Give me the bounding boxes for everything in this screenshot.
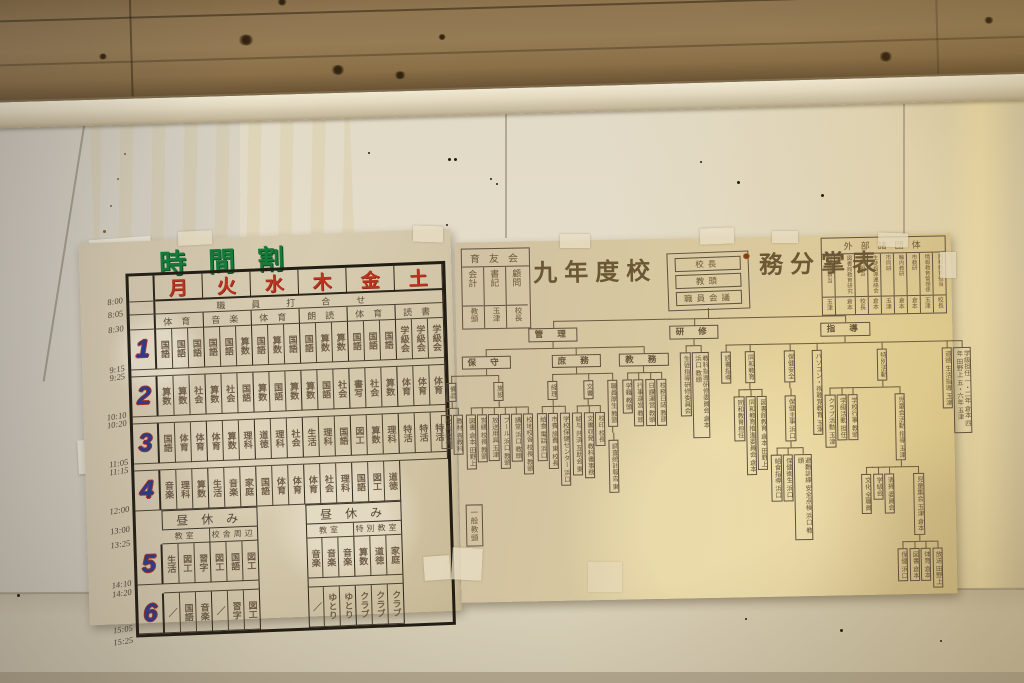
org-node-label: 図書 倉本 — [909, 547, 920, 581]
external-group-role: 図書館教育研究会 — [835, 254, 855, 297]
org-node: 調査統計報告 東 — [607, 432, 620, 492]
org-node: 学校行事 教頭 — [847, 387, 859, 441]
org-node-label: 調査統計報告 東 — [608, 439, 619, 492]
time-label: 10:20 — [106, 418, 127, 431]
org-children: 備品校具 校長教材 各教科施設図書 倉本 田野上営繕 校長 教頭放送用具 玉津プ… — [439, 374, 535, 476]
org-node-label: 講堂 浜口 教頭 — [511, 414, 522, 462]
timetable-cell: 生活 — [303, 417, 320, 458]
wall-speck — [17, 594, 20, 597]
org-node-label: 経理 — [547, 381, 558, 400]
org-node-label: 営繕 校長 教頭 — [477, 414, 488, 462]
timetable-cell: 国語 — [252, 325, 269, 366]
org-node: 同和教育同和教育担任同和教育推進委員会 倉本図書館教育 倉本 田野上 — [732, 343, 770, 475]
timetable-cell: 体育 — [207, 421, 224, 462]
timetable-cell: 国語 — [364, 321, 381, 362]
org-node-label: 教材 各教科 — [453, 415, 464, 455]
org-node-label: プール 浜口 教頭 — [500, 414, 511, 469]
timetable-cell: 図工 — [178, 543, 195, 584]
timetable-cell — [436, 582, 453, 623]
org-node-label: 生徒指導研修委員会 — [680, 352, 692, 417]
org-node-label: 同和教育担任 — [734, 396, 745, 441]
external-group-role: 市同研 — [881, 253, 894, 296]
timetable-cell: 国語 — [269, 371, 286, 412]
rust-speck — [117, 178, 119, 180]
org-node-label: 学級担任 一・二年 倉本 四年 田野上 五・六年 玉津 — [953, 346, 972, 432]
org-node: 管 理保 守備品校具 校長教材 各教科施設図書 倉本 田野上営繕 校長 教頭放送… — [437, 319, 672, 496]
timetable-cell: 理科 — [336, 463, 353, 504]
external-group-name: 倉本 — [895, 296, 907, 313]
org-node-label: 体育 倉本 — [921, 547, 932, 581]
org-node-label: 同和教育 — [744, 351, 755, 383]
org-node-label: 教 務 — [619, 352, 668, 366]
org-node-label: 道徳 生活指導 玉津 — [941, 347, 952, 408]
tape — [700, 227, 735, 244]
external-group-role: ALT担当 — [855, 254, 868, 297]
org-node: 読書指導 — [720, 344, 732, 383]
timetable-cell: 算数 — [316, 322, 333, 363]
timetable-cell — [135, 510, 162, 531]
time-label: 8:00 — [107, 295, 124, 307]
org-children: 保 守備品校具 校長教材 各教科施設図書 倉本 田野上営繕 校長 教頭放送用具 … — [438, 345, 671, 496]
org-children: 給食指導 浜口保健衛生 浜口避難訓練 安全点検 浜口 教頭 — [770, 447, 813, 541]
pta-role: 会計 — [462, 267, 484, 306]
timetable-cell: 算数 — [381, 367, 398, 408]
timetable-cell: 図工 — [351, 415, 368, 456]
external-group-name: 玉津 — [921, 296, 933, 313]
photo-of-wall-with-documents: 時間割 8:008:058:309:159:2510:1010:2011:051… — [0, 0, 1024, 683]
org-node-label: 保健安全 — [784, 350, 795, 382]
wall-speck — [840, 629, 843, 632]
orgchart-title-left: 九年度校 — [533, 251, 658, 288]
org-node: 教科指導研修委員会 倉本 浜口 教頭 — [691, 344, 712, 437]
org-node-label: 放送用具 玉津 — [488, 414, 499, 461]
timetable-cell — [276, 588, 293, 629]
org-node: 文化 全職員 — [861, 467, 873, 514]
timetable-cell: 音楽 — [338, 537, 355, 578]
timetable-cell — [400, 460, 417, 501]
external-group-name: 校長 — [856, 297, 868, 314]
org-children: 読書指導同和教育同和教育担任同和教育推進委員会 倉本図書館教育 倉本 田野上保健… — [720, 339, 975, 591]
timetable-cell: 社会 — [287, 418, 304, 459]
external-group-role: 生徒指導連絡会 — [868, 254, 881, 297]
timetable-cell: 理科 — [239, 420, 256, 461]
timetable-cell: 算数 — [301, 370, 318, 411]
rust-speck — [103, 230, 106, 233]
pta-columns: 会計教頭書記玉津顧問校長 — [462, 266, 530, 328]
timetable-cell: 理科 — [383, 414, 400, 455]
timetable-cell: 国語 — [159, 423, 176, 464]
org-node-label: 市費 旅費 東 校長 — [548, 413, 559, 470]
org-node: 文書給与 共済 互助会 東文書収発 教科書事務校印 校長 — [570, 373, 608, 479]
time-label: 12:00 — [109, 504, 130, 517]
timetable-cell: 国語 — [348, 321, 365, 362]
wood-knot — [331, 65, 345, 75]
org-node: 研 修生徒指導研修委員会教科指導研修委員会 倉本 浜口 教頭 — [669, 318, 722, 438]
timetable-cell: 家庭 — [386, 535, 403, 576]
org-node: 清掃 委員会 — [884, 467, 896, 514]
org-node-label: 避難訓練 安全点検 浜口 教頭 — [794, 454, 813, 540]
timetable-cell: 音楽 — [306, 538, 323, 579]
timetable-cell: 算数 — [173, 375, 190, 416]
pta-column: 顧問校長 — [506, 266, 528, 327]
timetable-cell: 4 — [134, 470, 161, 511]
timetable-cell: 体育 — [272, 465, 289, 506]
org-node: 校具 校長 — [441, 408, 453, 449]
org-node-label: 研 修 — [670, 325, 719, 339]
org-node: 体育 倉本 — [920, 540, 932, 581]
org-node-label: 図書 倉本 田野上 — [465, 414, 476, 469]
timetable-cell: 社会 — [320, 463, 337, 504]
timetable-cell: 木 — [298, 268, 347, 296]
timetable-cell: 社会 — [189, 375, 206, 416]
timetable-cell — [258, 540, 275, 581]
timetable-cell: 特活 — [415, 413, 432, 454]
org-node: 学籍 教頭 — [621, 372, 633, 413]
timetable-cell — [402, 534, 419, 575]
org-node: 校印 校長 — [594, 405, 606, 446]
timetable: 8:008:058:309:159:2510:1010:2011:0511:15… — [85, 261, 456, 639]
org-node-label: 読書指導 — [721, 351, 732, 383]
wood-knot — [984, 17, 994, 24]
timetable-cell: 家庭 — [240, 467, 257, 508]
org-root-item: 職員会議 — [676, 290, 742, 306]
external-group-role: 輪内教研 — [894, 253, 907, 296]
external-group-role: 児童会担当 — [822, 255, 835, 298]
org-children: 調査統計報告 東 — [607, 432, 620, 492]
external-group-column: 生徒指導連絡会倉本 — [868, 254, 882, 314]
timetable-cell: 6 — [138, 593, 165, 634]
timetable-cell: 算数 — [236, 326, 253, 367]
wall-speck — [454, 158, 457, 161]
timetable-cell: 音楽 — [224, 467, 241, 508]
timetable-cell: 算数 — [285, 371, 302, 412]
timetable-cell: ／ — [212, 591, 229, 632]
org-node: 経理給食 電話 浜口市費 旅費 東 校長学校保健センター 浜口 — [535, 374, 573, 486]
time-label: 15:05 — [113, 623, 134, 636]
org-node: 学校保健センター 浜口 — [559, 406, 572, 486]
org-node-label: 校印 校長 — [595, 412, 606, 446]
timetable-cell: 国語 — [188, 328, 205, 369]
external-group-column: 輪内教研倉本 — [894, 253, 908, 313]
timetable-cell — [130, 314, 156, 330]
wood-knot — [277, 0, 287, 6]
timetable-cell: 算数 — [354, 536, 371, 577]
time-label: 8:05 — [107, 308, 124, 320]
wood-board-joint — [934, 0, 939, 82]
timetable-cell: 理科 — [319, 416, 336, 457]
wall-seam-vertical — [505, 108, 507, 238]
org-node-label: 行事運営 教頭 — [633, 379, 644, 426]
timetable-cell: 算数 — [205, 374, 222, 415]
org-node: 日課運営 教頭 — [644, 372, 656, 426]
org-children: 生徒指導研修委員会教科指導研修委員会 倉本 浜口 教頭 — [679, 344, 711, 438]
external-group-name: 玉津 — [882, 296, 894, 313]
org-node-label: 管 理 — [529, 327, 578, 341]
timetable-cell: 音楽 — [160, 470, 177, 511]
pta-header: 育友会 — [462, 248, 529, 267]
org-node: 児童会活動 指導 玉津文化 全職員学級会清掃 委員会児童集会 玉津 倉本保健 浜… — [858, 385, 944, 589]
timetable-cell: 音楽 — [322, 537, 339, 578]
time-label: 13:00 — [110, 524, 131, 537]
org-node-label: 給食指導 浜口 — [771, 455, 782, 502]
timetable-cell: 国語 — [220, 326, 237, 367]
org-root-item: 校長 — [675, 256, 741, 272]
org-node-label: 日課運営 教頭 — [645, 379, 656, 426]
timetable-cell — [257, 505, 306, 527]
external-group-column: 図書館教育研究会倉本 — [835, 254, 856, 314]
org-node: 図書館教育 倉本 田野上 — [756, 388, 769, 469]
org-children: 保健主事 浜口給食指導 浜口保健衛生 浜口避難訓練 安全点検 浜口 教頭 — [769, 387, 815, 540]
timetable-cell: 国語 — [226, 541, 243, 582]
org-node-label: 同和教育推進委員会 倉本 — [745, 396, 757, 475]
org-node-label: 指 導 — [821, 322, 870, 336]
timetable-cell: クラブ — [356, 585, 373, 626]
org-root-item: 教頭 — [675, 273, 741, 289]
org-node: 児童集会 玉津 倉本保健 浜口図書 倉本体育 倉本放送 田野上 — [895, 466, 944, 588]
wall-speck — [745, 618, 747, 620]
orgchart-paper: 育友会 会計教頭書記玉津顧問校長 九年度校 校長教頭職員会議 務分掌表 外部諸団… — [455, 233, 958, 602]
timetable-cell: 図工 — [368, 461, 385, 502]
tape — [178, 230, 213, 246]
timetable-cell: 体育 — [304, 464, 321, 505]
timetable-cell: 理科 — [271, 418, 288, 459]
wood-knot — [438, 34, 446, 40]
external-group-role: 市教研 — [907, 253, 920, 296]
timetable-cell: 社会 — [333, 369, 350, 410]
wall-speck — [940, 640, 942, 642]
tape — [451, 547, 483, 581]
timetable-cell — [401, 499, 450, 521]
timetable-cell: 道徳 — [370, 535, 387, 576]
timetable-paper: 時間割 8:008:058:309:159:2510:1010:2011:051… — [78, 229, 461, 626]
org-node-label: 清掃 委員会 — [884, 474, 895, 514]
wall-speck — [496, 183, 498, 185]
org-node: 学級会 — [872, 467, 884, 500]
timetable-cell — [274, 539, 291, 580]
timetable-cell: 国語 — [204, 327, 221, 368]
org-node-label: 文書収発 教科書事務 — [584, 412, 596, 478]
org-node: 給食指導 浜口 — [770, 448, 782, 502]
org-node-label: 学校行事 教頭 — [848, 394, 859, 441]
external-group-column: 児童会担当玉津 — [822, 254, 836, 314]
org-node: 教 務学籍 教頭行事運営 教頭日課運営 教頭校務日誌 教頭 — [618, 345, 670, 426]
wood-knot — [238, 34, 254, 45]
org-node-label: 特別活動 — [877, 348, 888, 380]
timetable-cell: 5 — [136, 544, 163, 585]
org-top-branches: 管 理保 守備品校具 校長教材 各教科施設図書 倉本 田野上営繕 校長 教頭放送… — [460, 313, 953, 596]
org-node-label: 保 守 — [461, 355, 510, 369]
org-node-label: 施設 — [493, 382, 504, 401]
timetable-cell — [136, 530, 162, 545]
timetable-cell: 2 — [131, 376, 158, 417]
orgchart-root-box: 校長教頭職員会議 — [666, 250, 750, 311]
timetable-cell: クラブ — [372, 584, 389, 625]
timetable-cell — [292, 588, 309, 629]
orgchart-tree: 管 理保 守備品校具 校長教材 各教科施設図書 倉本 田野上営繕 校長 教頭放送… — [460, 313, 953, 596]
timetable-cell: 体育 — [288, 465, 305, 506]
org-node: 特別活動クラブ活動 玉津学級活動 担任学校行事 教頭児童会活動 指導 玉津文化 … — [823, 340, 946, 589]
org-node: 教材 各教科 — [452, 408, 464, 455]
wall-speck — [821, 194, 824, 197]
external-group-role: 情報教育管理係 — [920, 253, 933, 296]
org-node: 保健 浜口 — [897, 541, 909, 582]
timetable-cell: ゆとり — [324, 586, 341, 627]
timetable-cell — [260, 589, 277, 630]
external-groups-box: 外部諸団体 児童会担当玉津図書館教育研究会倉本ALT担当校長生徒指導連絡会倉本市… — [821, 235, 947, 315]
org-node: 校務日誌 教頭 — [655, 372, 667, 426]
timetable-cell: 生活 — [162, 544, 179, 585]
timetable-cell: 国語 — [284, 324, 301, 365]
wall-speck — [448, 158, 451, 161]
org-children: 文化 全職員学級会清掃 委員会児童集会 玉津 倉本保健 浜口図書 倉本体育 倉本… — [861, 466, 945, 589]
external-group-column: 情報教育管理係玉津 — [920, 253, 934, 313]
timetable-cell: ／ — [308, 587, 325, 628]
timetable-cell: 算数 — [367, 414, 384, 455]
org-node: 施設図書 倉本 田野上営繕 校長 教頭放送用具 玉津プール 浜口 教頭講堂 浜口… — [464, 374, 536, 476]
pta-box: 育友会 会計教頭書記玉津顧問校長 — [461, 247, 532, 329]
timetable-cell: 特活 — [399, 413, 416, 454]
org-children: 給食 電話 浜口市費 旅費 東 校長学校保健センター 浜口 — [536, 406, 572, 486]
timetable-cell — [290, 539, 307, 580]
wood-knot — [98, 53, 107, 59]
org-node-label: 保健主事 浜口 — [785, 395, 796, 442]
org-node: 保健衛生 浜口 — [782, 447, 794, 501]
wood-knot — [394, 71, 406, 79]
org-node-label: 文書 — [583, 380, 594, 399]
timetable-cell: 算数 — [332, 322, 349, 363]
org-node: 保 守備品校具 校長教材 各教科施設図書 倉本 田野上営繕 校長 教頭放送用具 … — [438, 348, 536, 477]
org-node: 指 導読書指導同和教育同和教育担任同和教育推進委員会 倉本図書館教育 倉本 田野… — [719, 313, 976, 591]
timetable-cell: 国語 — [380, 320, 397, 361]
timetable-cell: 1 — [130, 329, 157, 370]
org-node: 備品校具 校長教材 各教科 — [439, 376, 465, 456]
timetable-cell: 社会 — [365, 367, 382, 408]
timetable-cell: 音楽 — [196, 591, 213, 632]
org-node-label: 給与 共済 互助会 東 — [572, 412, 583, 475]
timetable-cell: 図工 — [210, 542, 227, 583]
external-group-column: ALT担当校長 — [855, 254, 869, 314]
org-children: 図書 倉本 田野上営繕 校長 教頭放送用具 玉津プール 浜口 教頭講堂 浜口 教… — [465, 406, 535, 476]
org-node-label: 給食 電話 浜口 — [537, 413, 548, 461]
timetable-cell: 理科 — [176, 469, 193, 510]
external-group-column: 市同研玉津 — [881, 253, 895, 313]
org-node: 放送 田野上 — [931, 540, 943, 587]
timetable-cell: 体育 — [397, 366, 414, 407]
time-label: 9:25 — [109, 371, 126, 383]
org-node: 庶 務経理給食 電話 浜口市費 旅費 東 校長学校保健センター 浜口文書給与 共… — [533, 346, 621, 494]
external-group-name: 校長 — [934, 295, 946, 312]
timetable-cell: 体育 — [191, 422, 208, 463]
org-node-label: 児童会活動 指導 玉津 — [895, 393, 907, 461]
timetable-cell: 金 — [346, 266, 395, 294]
timetable-cell: 国語 — [317, 369, 334, 410]
org-node: 保健安全保健主事 浜口給食指導 浜口保健衛生 浜口避難訓練 安全点検 浜口 教頭 — [767, 342, 815, 540]
timetable-cell — [420, 582, 437, 623]
wall-speck — [737, 181, 740, 184]
timetable-cell: クラブ — [388, 584, 405, 625]
wood-plank-seam — [0, 35, 1024, 67]
org-node-label: 学籍 教頭 — [622, 379, 633, 413]
org-node-label: 児童集会 玉津 倉本 — [913, 473, 924, 534]
external-group-name: 倉本 — [908, 296, 920, 313]
org-node-label: 文化 全職員 — [861, 474, 872, 514]
pta-column: 書記玉津 — [484, 267, 507, 328]
wall-speck — [700, 161, 702, 163]
org-node: 保健主事 浜口給食指導 浜口保健衛生 浜口避難訓練 安全点検 浜口 教頭 — [769, 387, 815, 540]
timetable-cell: 学級会 — [412, 319, 429, 360]
tape — [772, 231, 798, 243]
timetable-cell: 体育 — [175, 422, 192, 463]
rust-speck — [110, 205, 112, 207]
timetable-cell: 国語 — [335, 416, 352, 457]
pta-role: 顧問 — [506, 266, 528, 305]
tape — [560, 234, 590, 248]
timetable-cell: 図工 — [244, 590, 261, 631]
timetable-cell: 書写 — [349, 368, 366, 409]
timetable-cell: 火 — [202, 272, 251, 300]
timetable-cell: 社会 — [221, 373, 238, 414]
tape — [588, 562, 622, 592]
timetable-cell — [128, 276, 155, 303]
org-node-label: 放送 田野上 — [932, 547, 943, 587]
org-node-label: 学級会 — [873, 474, 884, 500]
tape — [940, 252, 956, 278]
org-node: 校地校舎 校長 教頭 — [522, 406, 535, 474]
org-node-label: 保健 浜口 — [898, 548, 909, 582]
org-children: 給与 共済 互助会 東文書収発 教科書事務校印 校長 — [571, 405, 607, 479]
external-group-name: 玉津 — [823, 298, 835, 315]
timetable-cell: 道徳 — [255, 419, 272, 460]
timetable-cell — [416, 460, 433, 501]
org-children: 学籍 教頭行事運営 教頭日課運営 教頭校務日誌 教頭 — [621, 372, 668, 426]
timetable-cell: 月 — [154, 274, 203, 302]
org-children: 経理給食 電話 浜口市費 旅費 東 校長学校保健センター 浜口文書給与 共済 互… — [535, 373, 621, 494]
tape — [423, 555, 451, 581]
timetable-cell: 習字 — [194, 542, 211, 583]
pta-role: 書記 — [484, 267, 506, 306]
tape — [413, 225, 444, 242]
rust-stain — [743, 253, 750, 259]
timetable-cell: 生活 — [208, 468, 225, 509]
timetable-cell — [129, 302, 155, 316]
time-label: 11:15 — [108, 465, 128, 478]
rust-speck — [124, 153, 126, 155]
timetable-cell: 体育 — [413, 366, 430, 407]
org-node-label: 保健衛生 浜口 — [783, 454, 794, 501]
timetable-cell: 国語 — [180, 592, 197, 633]
time-label: 8:30 — [108, 323, 125, 335]
wood-plank-seam — [0, 0, 1024, 23]
org-node-label: 校務日誌 教頭 — [656, 379, 667, 426]
timetable-cell: 算数 — [157, 376, 174, 417]
wall-speck — [490, 178, 492, 180]
org-node-label: 教科指導研修委員会 倉本 浜口 教頭 — [692, 351, 711, 437]
timetable-cell: 国語 — [352, 462, 369, 503]
org-children: 保健 浜口図書 倉本体育 倉本放送 田野上 — [897, 540, 944, 588]
org-children: 同和教育担任同和教育推進委員会 倉本図書館教育 倉本 田野上 — [733, 388, 769, 475]
org-node-label: 校具 校長 — [441, 415, 452, 449]
timetable-cell: 3 — [133, 423, 160, 464]
org-children: クラブ活動 玉津学級活動 担任学校行事 教頭児童会活動 指導 玉津文化 全職員学… — [824, 385, 945, 589]
timetable-cell: 図工 — [242, 541, 259, 582]
time-label: 13:25 — [110, 538, 131, 551]
timetable-cell: 学級会 — [396, 319, 413, 360]
timetable-cell: 算数 — [192, 469, 209, 510]
org-node: 学級担任 一・二年 倉本 四年 田野上 五・六年 玉津 — [952, 339, 973, 432]
org-node-label: クラブ活動 玉津 — [825, 394, 836, 447]
org-node: 避難訓練 安全点検 浜口 教頭 — [793, 447, 814, 540]
timetable-cell: 算数 — [223, 420, 240, 461]
